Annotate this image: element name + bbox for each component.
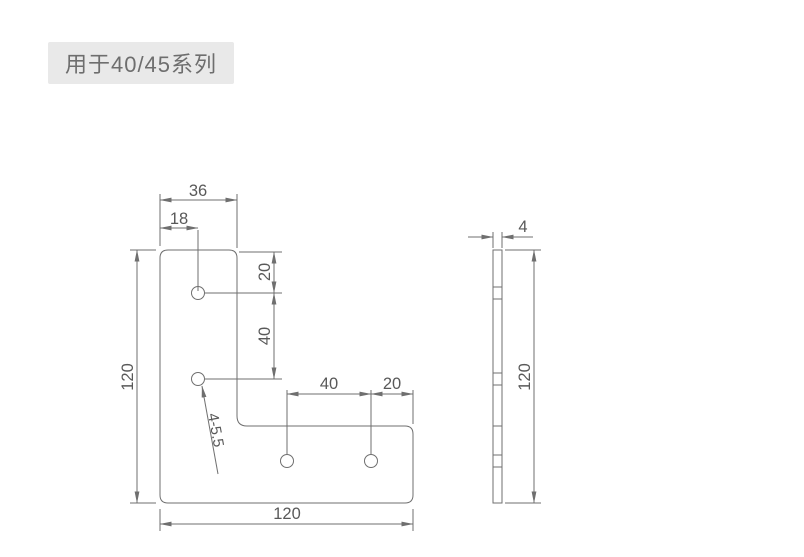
series-label-badge: 用于40/45系列 (48, 42, 234, 84)
product-dimension-image: 用于40/45系列 36 18 (0, 0, 804, 557)
dim-first-hole-from-top: 20 (256, 263, 274, 281)
series-label-text: 用于40/45系列 (65, 47, 217, 79)
dim-vertical-hole-pitch: 40 (256, 327, 274, 345)
bolt-hole (192, 373, 205, 386)
plate-edge-outline (493, 250, 502, 503)
dim-hole-offset-x: 18 (170, 210, 188, 228)
hole-callout: 4-5.5 (204, 412, 227, 449)
side-view: 4 120 (468, 218, 541, 503)
front-view: 36 18 20 40 120 40 20 (119, 182, 413, 531)
bolt-hole (365, 455, 378, 468)
dim-side-overall-height: 120 (516, 363, 534, 391)
dim-horizontal-hole-pitch: 40 (320, 375, 338, 393)
dim-last-hole-from-right: 20 (383, 375, 401, 393)
bolt-hole (281, 455, 294, 468)
dim-overall-height: 120 (119, 363, 137, 391)
dim-arm-width: 36 (189, 182, 207, 200)
dim-thickness: 4 (518, 218, 527, 236)
dim-overall-width: 120 (273, 505, 301, 523)
